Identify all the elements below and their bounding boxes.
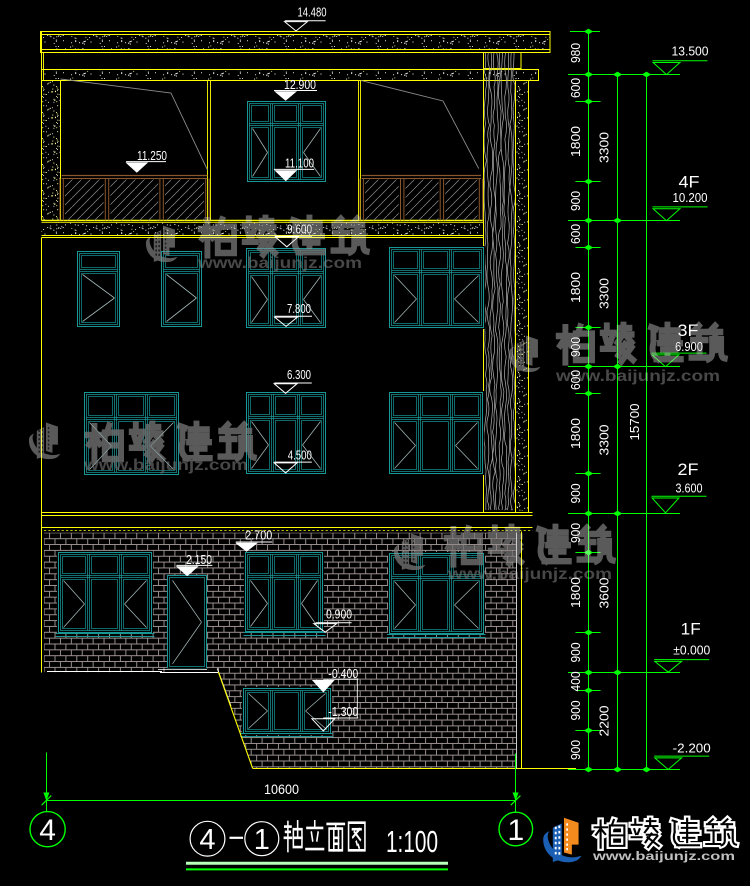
svg-text:14.480: 14.480 [298, 6, 327, 20]
svg-text:3300: 3300 [598, 424, 612, 455]
svg-text:www.baijunjz.com: www.baijunjz.com [592, 849, 735, 863]
svg-text:900: 900 [569, 483, 583, 503]
svg-text:11.100: 11.100 [285, 156, 314, 170]
svg-text:1:100: 1:100 [386, 824, 438, 859]
svg-text:1800: 1800 [569, 418, 583, 449]
svg-text:980: 980 [569, 43, 583, 63]
svg-text:12.900: 12.900 [284, 78, 316, 92]
svg-text:2F: 2F [678, 460, 699, 479]
svg-text:400: 400 [569, 671, 583, 691]
svg-text:7.800: 7.800 [287, 302, 311, 316]
svg-text:4: 4 [199, 824, 215, 856]
svg-text:1: 1 [254, 824, 270, 856]
svg-text:600: 600 [569, 78, 583, 98]
svg-text:900: 900 [569, 740, 583, 760]
svg-text:6.300: 6.300 [287, 368, 311, 382]
svg-text:10.200: 10.200 [673, 190, 708, 205]
svg-text:-2.200: -2.200 [673, 741, 711, 756]
svg-text:±0.000: ±0.000 [673, 643, 710, 658]
svg-text:4: 4 [39, 814, 56, 847]
svg-text:4F: 4F [679, 173, 700, 192]
svg-text:2.700: 2.700 [245, 528, 272, 542]
svg-text:0.900: 0.900 [326, 607, 352, 621]
svg-text:-1.300: -1.300 [328, 705, 358, 719]
svg-text:www.baijunjz.com: www.baijunjz.com [197, 255, 362, 272]
svg-text:600: 600 [569, 224, 583, 244]
svg-text:900: 900 [569, 191, 583, 211]
svg-text:10600: 10600 [264, 781, 299, 797]
svg-text:900: 900 [569, 700, 583, 720]
svg-text:3300: 3300 [598, 278, 612, 309]
svg-text:3.600: 3.600 [676, 481, 703, 496]
svg-text:2200: 2200 [598, 705, 612, 736]
svg-text:11.250: 11.250 [137, 149, 167, 163]
svg-text:www.baijunjz.com: www.baijunjz.com [447, 566, 612, 583]
svg-text:www.baijunjz.com: www.baijunjz.com [555, 368, 720, 385]
svg-text:1: 1 [507, 814, 524, 847]
svg-text:3300: 3300 [598, 132, 612, 163]
svg-text:900: 900 [569, 642, 583, 662]
svg-text:1F: 1F [681, 620, 701, 639]
svg-text:1800: 1800 [569, 126, 583, 157]
svg-text:4.500: 4.500 [288, 448, 312, 462]
svg-text:www.baijunjz.com: www.baijunjz.com [83, 457, 248, 474]
svg-text:1800: 1800 [569, 272, 583, 303]
svg-text:13.500: 13.500 [672, 44, 709, 59]
svg-text:15700: 15700 [628, 403, 642, 440]
